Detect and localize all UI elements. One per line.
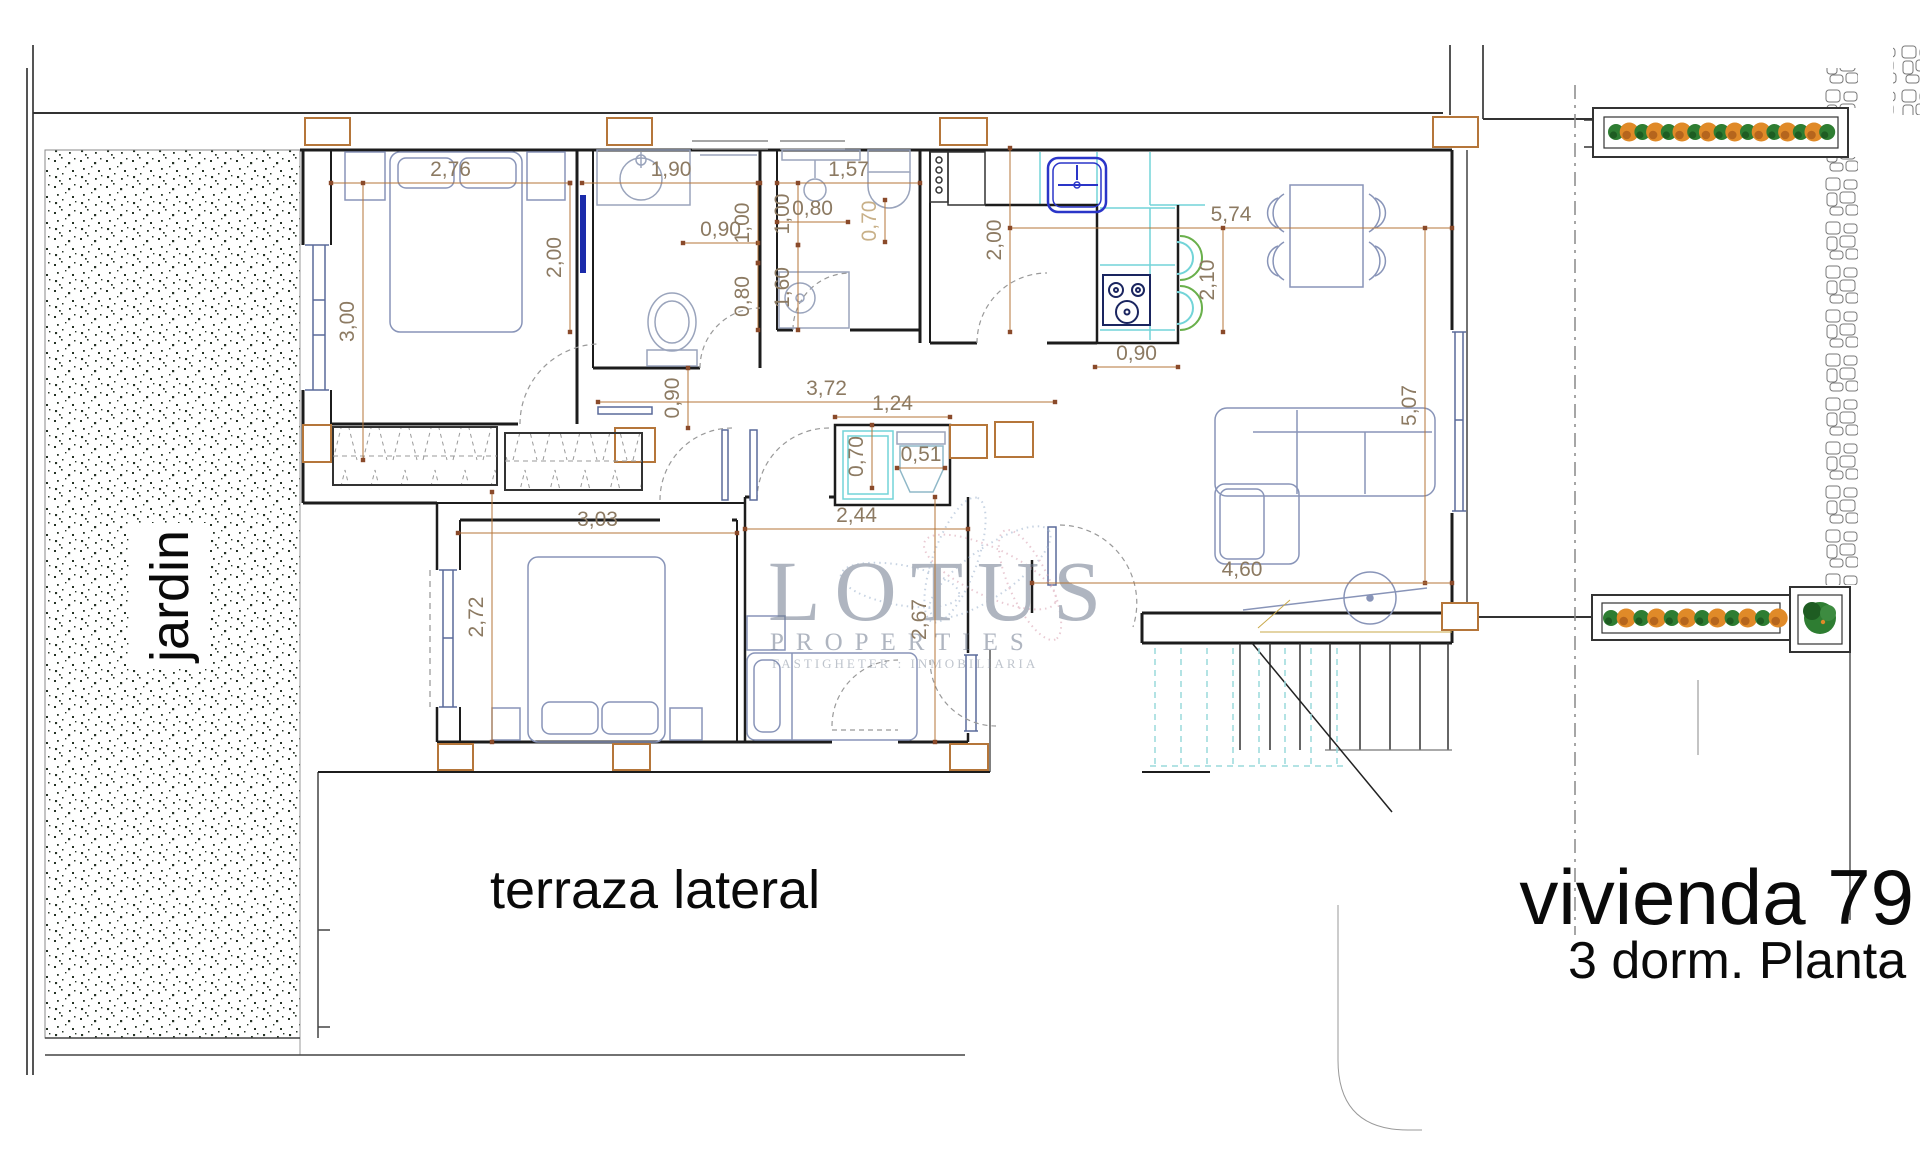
- dimension-value: 2,67: [908, 599, 931, 640]
- dimension-value: 1,90: [651, 158, 692, 181]
- dimension: 1,00: [731, 181, 760, 265]
- dimension-value: 0,80: [792, 197, 833, 220]
- dimension-value: 2,00: [543, 237, 566, 278]
- dimension: 0,51: [895, 443, 947, 470]
- dimension-value: 0,70: [858, 201, 881, 242]
- sofa: [1215, 408, 1435, 564]
- door-leaf-bedroom3-a: [722, 430, 728, 500]
- dimension: 0,80: [731, 261, 760, 332]
- dimension-value: 2,72: [465, 597, 488, 638]
- dimension: 1,24: [833, 392, 952, 419]
- dimension-value: 1,24: [872, 392, 913, 415]
- door-leaf-bedroom3-b: [750, 430, 757, 500]
- corner-bush: [1790, 587, 1850, 652]
- stairs-lower-flight: [1150, 648, 1345, 766]
- plant-green: [1819, 124, 1835, 140]
- dimension-value: 2,76: [430, 158, 471, 181]
- watermark-sub: PROPERTIES: [770, 629, 1036, 656]
- plant-green: [1694, 610, 1710, 626]
- wardrobes: [333, 427, 642, 490]
- stairs: [1150, 600, 1452, 812]
- dimension-value: 0,70: [845, 436, 868, 477]
- dimension-value: 1,57: [828, 158, 869, 181]
- dimension-value: 0,90: [1116, 342, 1157, 365]
- dimension-value: 3,03: [577, 508, 618, 531]
- stairs-cut-line: [1252, 643, 1392, 812]
- floor-plan-canvas: jardin: [0, 0, 1920, 1159]
- garden-label: jardin: [140, 530, 200, 664]
- dining-table: [1290, 185, 1363, 287]
- window-bedroom2: [430, 570, 457, 707]
- dimension: 1,90: [580, 158, 762, 185]
- title-block: vivienda 79 3 dorm. Planta Baja: [1519, 853, 1920, 990]
- dimension-value: 4,60: [1222, 558, 1263, 581]
- dimension-value: 5,07: [1398, 385, 1421, 426]
- door-arc-bedroom3: [757, 428, 829, 500]
- watermark: LOTUS PROPERTIES FASTIGHETER : INMOBILIA…: [768, 490, 1115, 671]
- dimension-value: 3,00: [336, 301, 359, 342]
- dimension-value: 0,51: [901, 443, 942, 466]
- dimension-value: 1,00: [731, 203, 754, 244]
- window-living: [1452, 332, 1466, 511]
- dimension-value: 2,10: [1196, 260, 1219, 301]
- dimension: 5,07: [1398, 226, 1427, 585]
- dimension: 3,00: [336, 181, 365, 462]
- dimension: 0,90: [661, 366, 690, 430]
- plant-green: [1725, 610, 1741, 626]
- watermark-brand: LOTUS: [768, 543, 1115, 639]
- window-bedroom1: [305, 245, 329, 390]
- dimension: 3,03: [456, 508, 739, 535]
- window-bath2-top: [780, 141, 845, 149]
- plant-green: [1664, 610, 1680, 626]
- watermark-tagline: FASTIGHETER : INMOBILIARIA: [772, 656, 1038, 671]
- dimension: 0,70: [858, 198, 887, 244]
- dimension: 2,44: [743, 504, 970, 531]
- terrace-edge: [318, 772, 330, 1038]
- terrace-label: terraza lateral: [490, 860, 820, 920]
- pocket-door-blue: [580, 195, 586, 273]
- bed-double-2: [492, 557, 702, 742]
- dimension-value: 5,74: [1211, 203, 1252, 226]
- dimension-value: 2,44: [836, 504, 877, 527]
- dimension: 1,60: [771, 243, 800, 332]
- title-subtitle: 3 dorm. Planta Baja: [1568, 932, 1920, 990]
- dimension: 0,90: [1093, 342, 1180, 369]
- dimension-value: 0,90: [661, 378, 684, 419]
- window-bath1-top: [692, 141, 768, 149]
- planter-top: [1584, 108, 1848, 157]
- toilet-1: [647, 293, 697, 366]
- dimension-value: 0,80: [731, 276, 754, 317]
- dimension-value: 2,00: [983, 220, 1006, 261]
- planter-side: [1592, 595, 1790, 640]
- ceiling-fan: [1243, 572, 1427, 624]
- dimension-value: 1,00: [771, 194, 794, 235]
- dimension-value: 3,72: [806, 377, 847, 400]
- plant-green: [1755, 610, 1771, 626]
- dimension: 0,70: [845, 423, 874, 490]
- door-leaf-hall: [598, 407, 652, 414]
- stove: [1103, 275, 1150, 325]
- boiler-unit: [930, 152, 985, 205]
- kitchen: [930, 152, 1205, 343]
- dimension: 2,00: [543, 181, 572, 334]
- dining-chairs: [1268, 194, 1386, 280]
- plant-green: [1603, 610, 1619, 626]
- title-name: vivienda 79: [1519, 853, 1914, 941]
- plant-green: [1633, 610, 1649, 626]
- dimension-value: 1,60: [771, 267, 794, 308]
- dimension: 2,76: [329, 158, 572, 185]
- stone-wall-corner: [1893, 42, 1920, 115]
- floor-plan-page: jardin: [0, 0, 1920, 1159]
- door-arc-bedroom2: [660, 428, 732, 500]
- door-arc-bedroom1: [520, 344, 600, 424]
- dimension: 2,72: [465, 490, 494, 744]
